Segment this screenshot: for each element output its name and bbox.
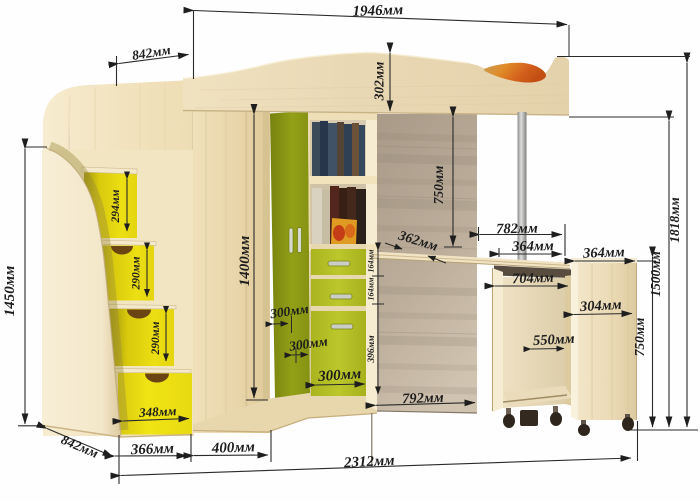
svg-text:348мм: 348мм bbox=[138, 403, 177, 420]
svg-text:750мм: 750мм bbox=[632, 318, 647, 357]
svg-text:302мм: 302мм bbox=[372, 62, 387, 102]
svg-text:304мм: 304мм bbox=[579, 297, 622, 315]
svg-text:364мм: 364мм bbox=[511, 238, 554, 255]
svg-text:550мм: 550мм bbox=[533, 331, 575, 349]
svg-text:290мм: 290мм bbox=[150, 321, 162, 355]
svg-text:1450мм: 1450мм bbox=[2, 266, 18, 317]
svg-text:366мм: 366мм bbox=[130, 441, 175, 459]
svg-text:294мм: 294мм bbox=[110, 189, 122, 223]
svg-text:400мм: 400мм bbox=[211, 439, 256, 457]
svg-text:290мм: 290мм bbox=[131, 256, 143, 290]
svg-text:300мм: 300мм bbox=[317, 366, 362, 385]
svg-text:704мм: 704мм bbox=[512, 270, 554, 287]
svg-text:396мм: 396мм bbox=[367, 335, 377, 364]
svg-text:364мм: 364мм bbox=[582, 244, 625, 261]
svg-text:2312мм: 2312мм bbox=[343, 453, 395, 472]
svg-text:782мм: 782мм bbox=[496, 221, 538, 238]
svg-text:1400мм: 1400мм bbox=[237, 236, 253, 287]
svg-text:164мм: 164мм bbox=[367, 249, 376, 272]
svg-text:792мм: 792мм bbox=[402, 390, 444, 407]
svg-text:1500мм: 1500мм bbox=[648, 251, 663, 297]
svg-text:1818мм: 1818мм bbox=[667, 197, 682, 243]
svg-text:1946мм: 1946мм bbox=[352, 2, 403, 20]
svg-text:164мм: 164мм bbox=[367, 277, 376, 300]
svg-text:750мм: 750мм bbox=[431, 166, 446, 205]
